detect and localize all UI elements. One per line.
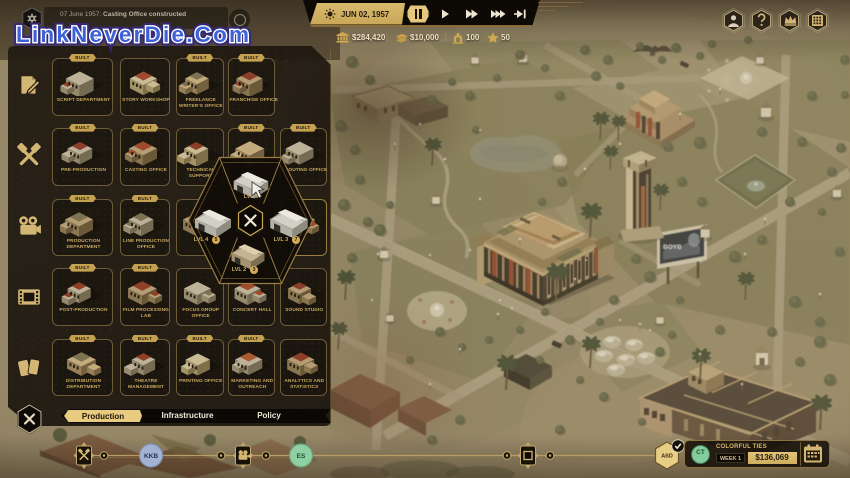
- svg-text:KKB: KKB: [144, 453, 158, 460]
- svg-text:ASD: ASD: [661, 454, 673, 460]
- svg-text:ES: ES: [297, 453, 306, 460]
